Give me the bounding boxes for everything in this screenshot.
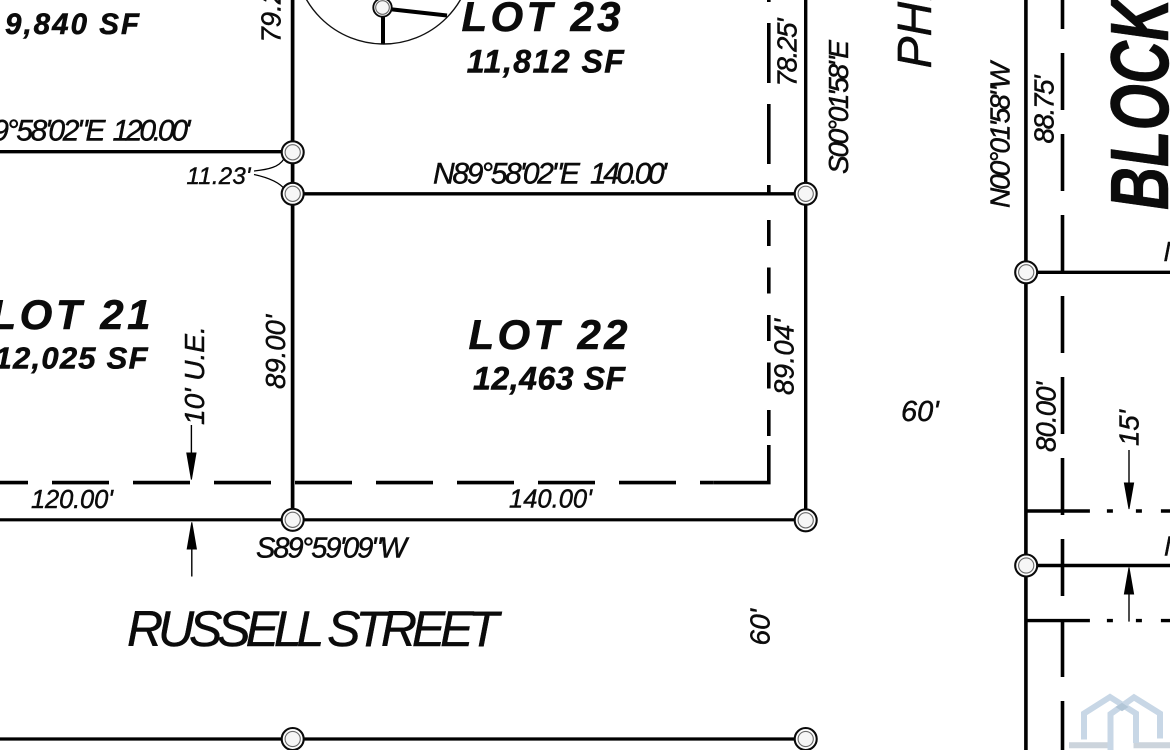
svg-text:11.23': 11.23' bbox=[187, 163, 252, 190]
svg-text:LOT 23: LOT 23 bbox=[462, 0, 621, 40]
svg-text:N89°58'02"E: N89°58'02"E bbox=[0, 115, 106, 148]
svg-text:PHILLIPS: PHILLIPS bbox=[889, 0, 942, 69]
svg-text:89.04': 89.04' bbox=[769, 317, 800, 395]
svg-text:60': 60' bbox=[745, 607, 776, 645]
svg-text:89.00': 89.00' bbox=[260, 313, 291, 389]
svg-text:LOT 21: LOT 21 bbox=[0, 291, 151, 338]
svg-text:BLOCK: BLOCK bbox=[1093, 0, 1170, 210]
svg-text:N8: N8 bbox=[1164, 531, 1170, 562]
svg-text:88.75': 88.75' bbox=[1029, 74, 1060, 144]
svg-text:RUSSELL STREET: RUSSELL STREET bbox=[127, 601, 502, 657]
svg-text:120.00': 120.00' bbox=[31, 486, 114, 514]
svg-text:N89°58'02"E: N89°58'02"E bbox=[433, 158, 581, 191]
svg-text:79.25': 79.25' bbox=[256, 0, 287, 43]
svg-text:S00°01'58"E: S00°01'58"E bbox=[823, 40, 854, 174]
svg-text:12,025 SF: 12,025 SF bbox=[0, 341, 149, 376]
svg-text:15': 15' bbox=[1114, 408, 1145, 446]
svg-text:N8: N8 bbox=[1164, 236, 1170, 267]
svg-text:N00°01'58"W: N00°01'58"W bbox=[985, 59, 1016, 208]
svg-text:140.00': 140.00' bbox=[509, 486, 593, 514]
svg-text:60': 60' bbox=[901, 396, 940, 428]
svg-text:11,812 SF: 11,812 SF bbox=[467, 44, 625, 80]
svg-text:LOT 22: LOT 22 bbox=[469, 311, 628, 358]
svg-text:120.00': 120.00' bbox=[113, 115, 192, 148]
svg-text:80.00': 80.00' bbox=[1031, 380, 1062, 452]
svg-text:S89°59'09"W: S89°59'09"W bbox=[256, 533, 410, 565]
svg-text:10' U.E.: 10' U.E. bbox=[179, 326, 210, 425]
svg-text:78.25': 78.25' bbox=[772, 17, 803, 87]
svg-text:12,463 SF: 12,463 SF bbox=[473, 361, 626, 397]
svg-text:140.00': 140.00' bbox=[590, 158, 668, 191]
